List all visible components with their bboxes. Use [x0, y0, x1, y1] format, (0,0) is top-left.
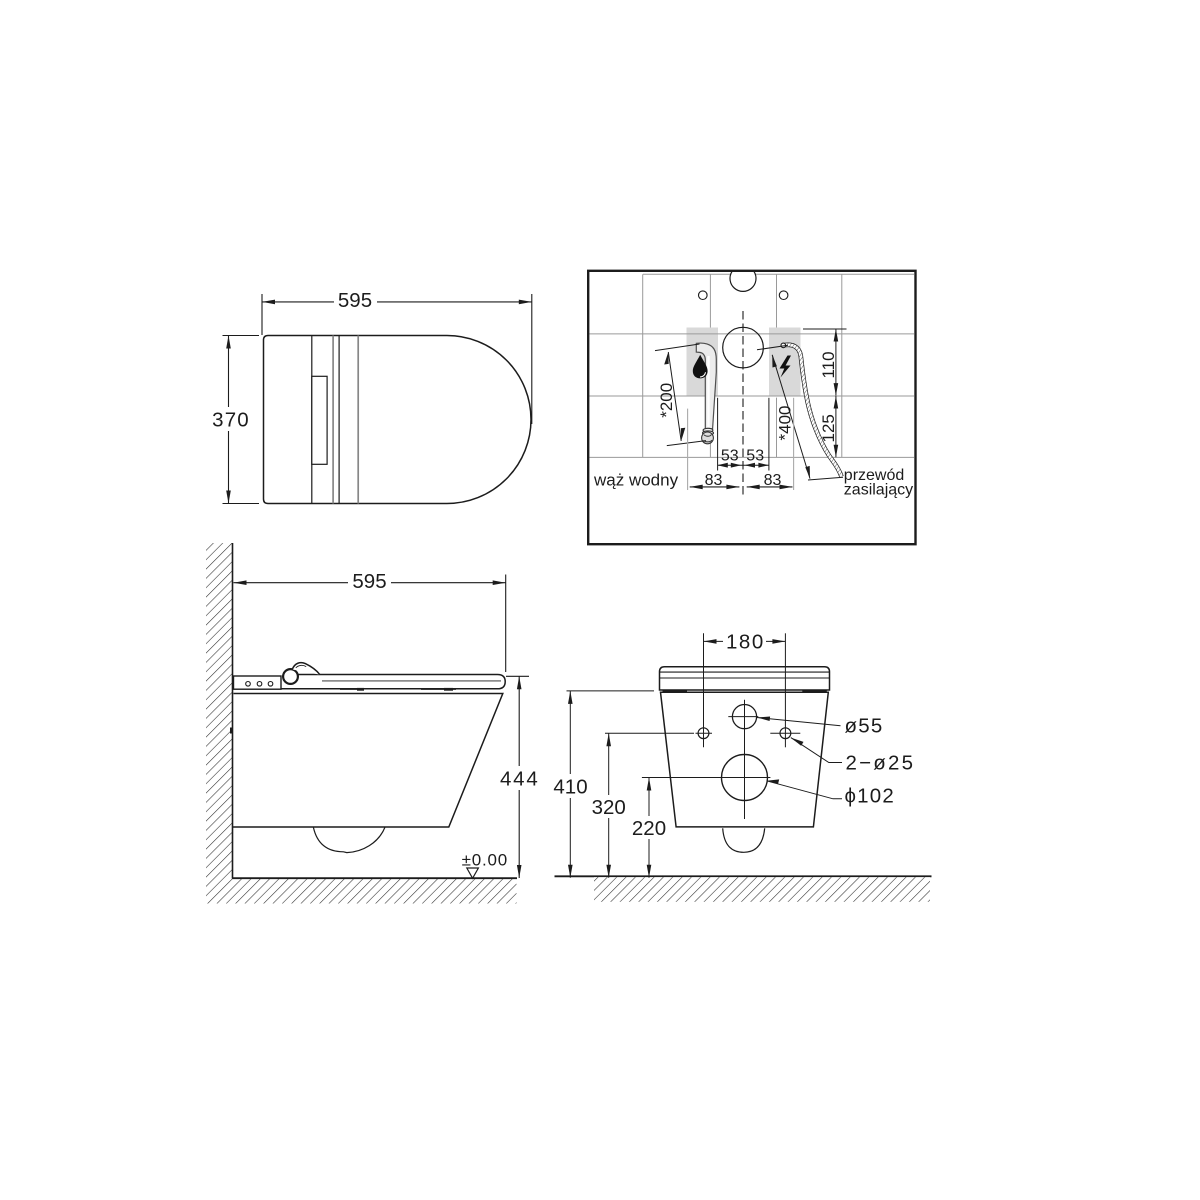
svg-text:2−ø25: 2−ø25: [846, 752, 916, 775]
svg-text:595: 595: [338, 289, 372, 312]
svg-text:110: 110: [819, 351, 838, 378]
svg-text:410: 410: [553, 776, 587, 799]
svg-text:53: 53: [746, 448, 764, 465]
svg-text:±0.00: ±0.00: [462, 851, 508, 870]
svg-text:*200: *200: [657, 383, 676, 418]
svg-text:125: 125: [819, 414, 838, 442]
svg-text:180: 180: [726, 631, 765, 654]
svg-text:wąż wodny: wąż wodny: [593, 471, 679, 490]
svg-text:83: 83: [764, 472, 782, 489]
svg-text:*400: *400: [775, 406, 794, 441]
svg-text:ø55: ø55: [845, 715, 884, 738]
svg-text:53: 53: [721, 448, 739, 465]
svg-text:83: 83: [705, 472, 723, 489]
svg-text:444: 444: [500, 768, 540, 791]
svg-text:320: 320: [592, 796, 626, 819]
svg-text:370: 370: [212, 409, 250, 432]
svg-text:ϕ102: ϕ102: [845, 785, 896, 808]
svg-text:zasilający: zasilający: [844, 482, 913, 499]
svg-text:220: 220: [632, 817, 666, 840]
svg-text:595: 595: [352, 570, 386, 593]
